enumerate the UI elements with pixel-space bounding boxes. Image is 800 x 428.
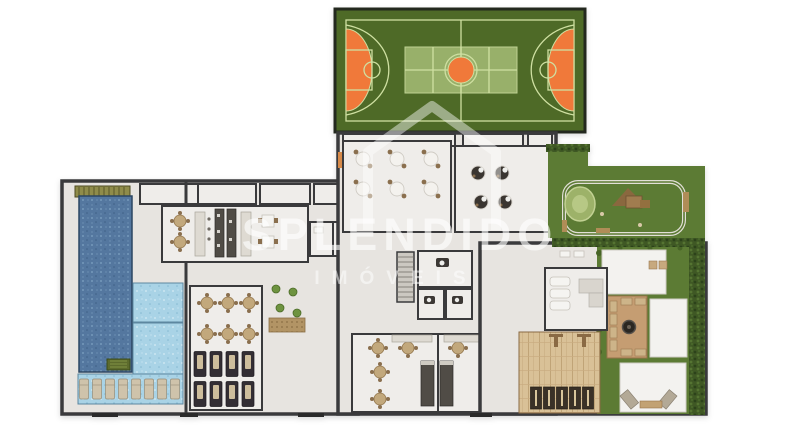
plant xyxy=(289,288,297,296)
basketball-court xyxy=(335,9,585,132)
bench xyxy=(683,192,689,212)
right-block xyxy=(480,243,706,414)
hedge xyxy=(689,243,705,415)
hedge xyxy=(552,238,705,247)
bench xyxy=(640,401,662,408)
bench xyxy=(596,228,610,233)
patio-table xyxy=(659,261,667,269)
bench xyxy=(562,220,567,232)
kitchen-island xyxy=(421,361,434,406)
garden-patio xyxy=(650,299,687,357)
kids-pool xyxy=(133,323,183,375)
counter xyxy=(444,335,484,342)
fixture xyxy=(574,251,584,257)
sofa xyxy=(579,279,603,293)
hedge xyxy=(546,144,590,152)
plant xyxy=(272,285,280,293)
kids-pool xyxy=(133,283,183,322)
massage-beds xyxy=(550,277,570,310)
utility-room xyxy=(260,184,310,204)
deck-loungers xyxy=(531,387,594,409)
trellis-mat xyxy=(269,318,305,332)
floor-plan-canvas: SPLENDIDO IMÓVEIS xyxy=(0,0,800,428)
center-circle xyxy=(448,57,474,83)
bar-counter xyxy=(195,212,205,256)
plant xyxy=(293,309,301,317)
garden-patio xyxy=(602,250,666,294)
patio-table xyxy=(649,261,657,269)
plant xyxy=(276,304,284,312)
kitchen-island xyxy=(440,361,453,406)
counter xyxy=(392,335,432,342)
floor-plan: SPLENDIDO IMÓVEIS xyxy=(0,0,800,428)
watermark-brand: SPLENDIDO xyxy=(242,209,559,260)
fixture xyxy=(560,251,570,257)
sofa xyxy=(589,293,603,307)
lap-pool xyxy=(79,196,132,372)
watermark-tagline: IMÓVEIS xyxy=(314,267,477,289)
kitchen-counter xyxy=(227,209,236,257)
